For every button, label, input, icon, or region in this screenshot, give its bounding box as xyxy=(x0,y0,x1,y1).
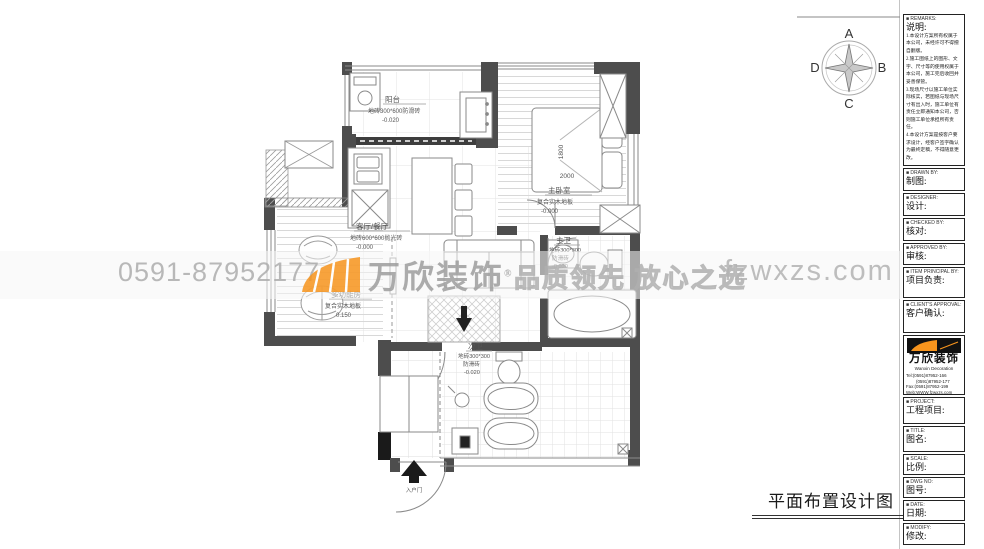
washing-machine xyxy=(350,73,380,111)
svg-text:复合实木地板: 复合实木地板 xyxy=(537,198,573,206)
svg-text:-0.000: -0.000 xyxy=(541,209,559,215)
dining-table xyxy=(412,158,472,236)
dim-bed-width: 1800 xyxy=(558,144,565,159)
company-section: 万欣装饰 Wanxin Decoration Tel:(0591)87952-1… xyxy=(903,335,965,395)
checked-by-section: ■ CHECKED BY: 核对: xyxy=(903,218,965,241)
remarks-label: 说明: xyxy=(906,22,962,33)
svg-text:多功能房: 多功能房 xyxy=(331,289,361,299)
svg-text:主卫: 主卫 xyxy=(556,235,571,245)
svg-text:防滑砖: 防滑砖 xyxy=(463,360,480,368)
designer-label: 设计: xyxy=(906,201,962,212)
svg-text:-0.000: -0.000 xyxy=(356,245,374,251)
principal-label: 项目负责: xyxy=(906,275,962,286)
approved-by-section: ■ APPROVED BY: 审核: xyxy=(903,243,965,265)
entry-label: 入户门 xyxy=(406,486,423,494)
drawing-title-section: ■ TITLE: 图名: xyxy=(903,426,965,452)
drawn-by-label: 制图: xyxy=(906,176,962,187)
svg-text:-0.020: -0.020 xyxy=(552,264,568,270)
approved-by-label: 审核: xyxy=(906,251,962,262)
project-section: ■ PROJECT: 工程项目: xyxy=(903,397,965,424)
dwg-no-label: 图号: xyxy=(906,485,962,496)
svg-text:主卧室: 主卧室 xyxy=(548,185,571,195)
drawing-title-label: 图名: xyxy=(906,434,962,445)
svg-text:次卫: 次卫 xyxy=(468,341,483,351)
svg-text:地砖300*300: 地砖300*300 xyxy=(458,352,490,360)
date-label: 日期: xyxy=(906,508,962,519)
sheet-title: 平面布置设计图 xyxy=(752,487,910,519)
compass-icon: A B C D xyxy=(810,26,886,111)
svg-text:地砖600*600抛光砖: 地砖600*600抛光砖 xyxy=(350,234,402,242)
dim-bed-length: 2000 xyxy=(560,173,575,180)
svg-text:阳台: 阳台 xyxy=(385,94,400,104)
drawn-by-section: ■ DRAWN BY: 制图: xyxy=(903,168,965,191)
remarks-note: 2.施工图纸上的图形、文字、尺寸等的使用权属于本公司，施工完后收回并妥善保管。 xyxy=(906,56,962,86)
svg-text:地砖300*300: 地砖300*300 xyxy=(549,246,581,254)
compass-n: A xyxy=(845,26,854,41)
svg-text:复合实木地板: 复合实木地板 xyxy=(325,302,361,310)
remarks-note: 1.本设计方案所有权属于本公司，未经许可不得擅自翻版。 xyxy=(906,33,962,55)
svg-text:-0.020: -0.020 xyxy=(464,370,480,376)
project-label: 工程项目: xyxy=(906,405,962,416)
date-section: ■ DATE: 日期: xyxy=(903,500,965,521)
scale-section: ■ SCALE: 比例: xyxy=(903,454,965,475)
designer-section: ■ DESIGNER: 设计: xyxy=(903,193,965,216)
checked-by-label: 核对: xyxy=(906,226,962,237)
principal-section: ■ ITEM PRINCIPAL BY: 项目负责: xyxy=(903,267,965,298)
remarks-section: ■ REMARKS: 说明: 1.本设计方案所有权属于本公司，未经许可不得擅自翻… xyxy=(903,14,965,166)
title-block: ■ REMARKS: 说明: 1.本设计方案所有权属于本公司，未经许可不得擅自翻… xyxy=(903,14,965,547)
company-web: Web:WWW.fzwxzs.com xyxy=(906,390,962,396)
sliding-door xyxy=(356,137,476,145)
compass-s: C xyxy=(844,96,853,111)
modify-label: 修改: xyxy=(906,531,962,542)
remarks-note: 3.现场尺寸以施工单位实际核实，若图纸与现场尺寸有出入时，施工单位有责任立即通知… xyxy=(906,87,962,132)
remarks-notes: 1.本设计方案所有权属于本公司，未经许可不得擅自翻版。 2.施工图纸上的图形、文… xyxy=(906,33,962,162)
entry-arrow-icon xyxy=(401,460,427,483)
hatched-wall xyxy=(265,141,351,207)
scale-label: 比例: xyxy=(906,462,962,473)
drawing-sheet: A B C D xyxy=(0,0,984,549)
sofa xyxy=(444,240,534,288)
svg-text:-0.020: -0.020 xyxy=(382,118,400,124)
balcony-cabinet xyxy=(460,92,492,138)
company-name-en: Wanxin Decoration xyxy=(906,366,962,372)
dwg-no-section: ■ DWG NO: 图号: xyxy=(903,477,965,498)
client-approval-label: 客户确认: xyxy=(906,308,962,319)
svg-text:地砖300*600防滑砖: 地砖300*600防滑砖 xyxy=(368,107,420,115)
client-approval-section: ■ CLIENT'S APPROVAL: 客户确认: xyxy=(903,300,965,333)
svg-text:客厅/餐厅: 客厅/餐厅 xyxy=(356,221,389,231)
company-logo-icon xyxy=(907,338,961,353)
compass-e: B xyxy=(878,60,887,75)
svg-text:防滑砖: 防滑砖 xyxy=(552,254,569,262)
floor-plan: A B C D xyxy=(0,0,900,549)
kitchen-counter xyxy=(348,148,390,228)
entry-cabinet xyxy=(380,376,438,432)
modify-section: ■ MODIFY: 修改: xyxy=(903,523,965,545)
compass-w: D xyxy=(810,60,819,75)
remarks-note: 4.本设计方案是按客户要求设计，经客户签字确认为最终定稿，不得随意更改。 xyxy=(906,132,962,162)
svg-text:0.150: 0.150 xyxy=(336,313,352,319)
company-name: 万欣装饰 xyxy=(906,353,962,366)
